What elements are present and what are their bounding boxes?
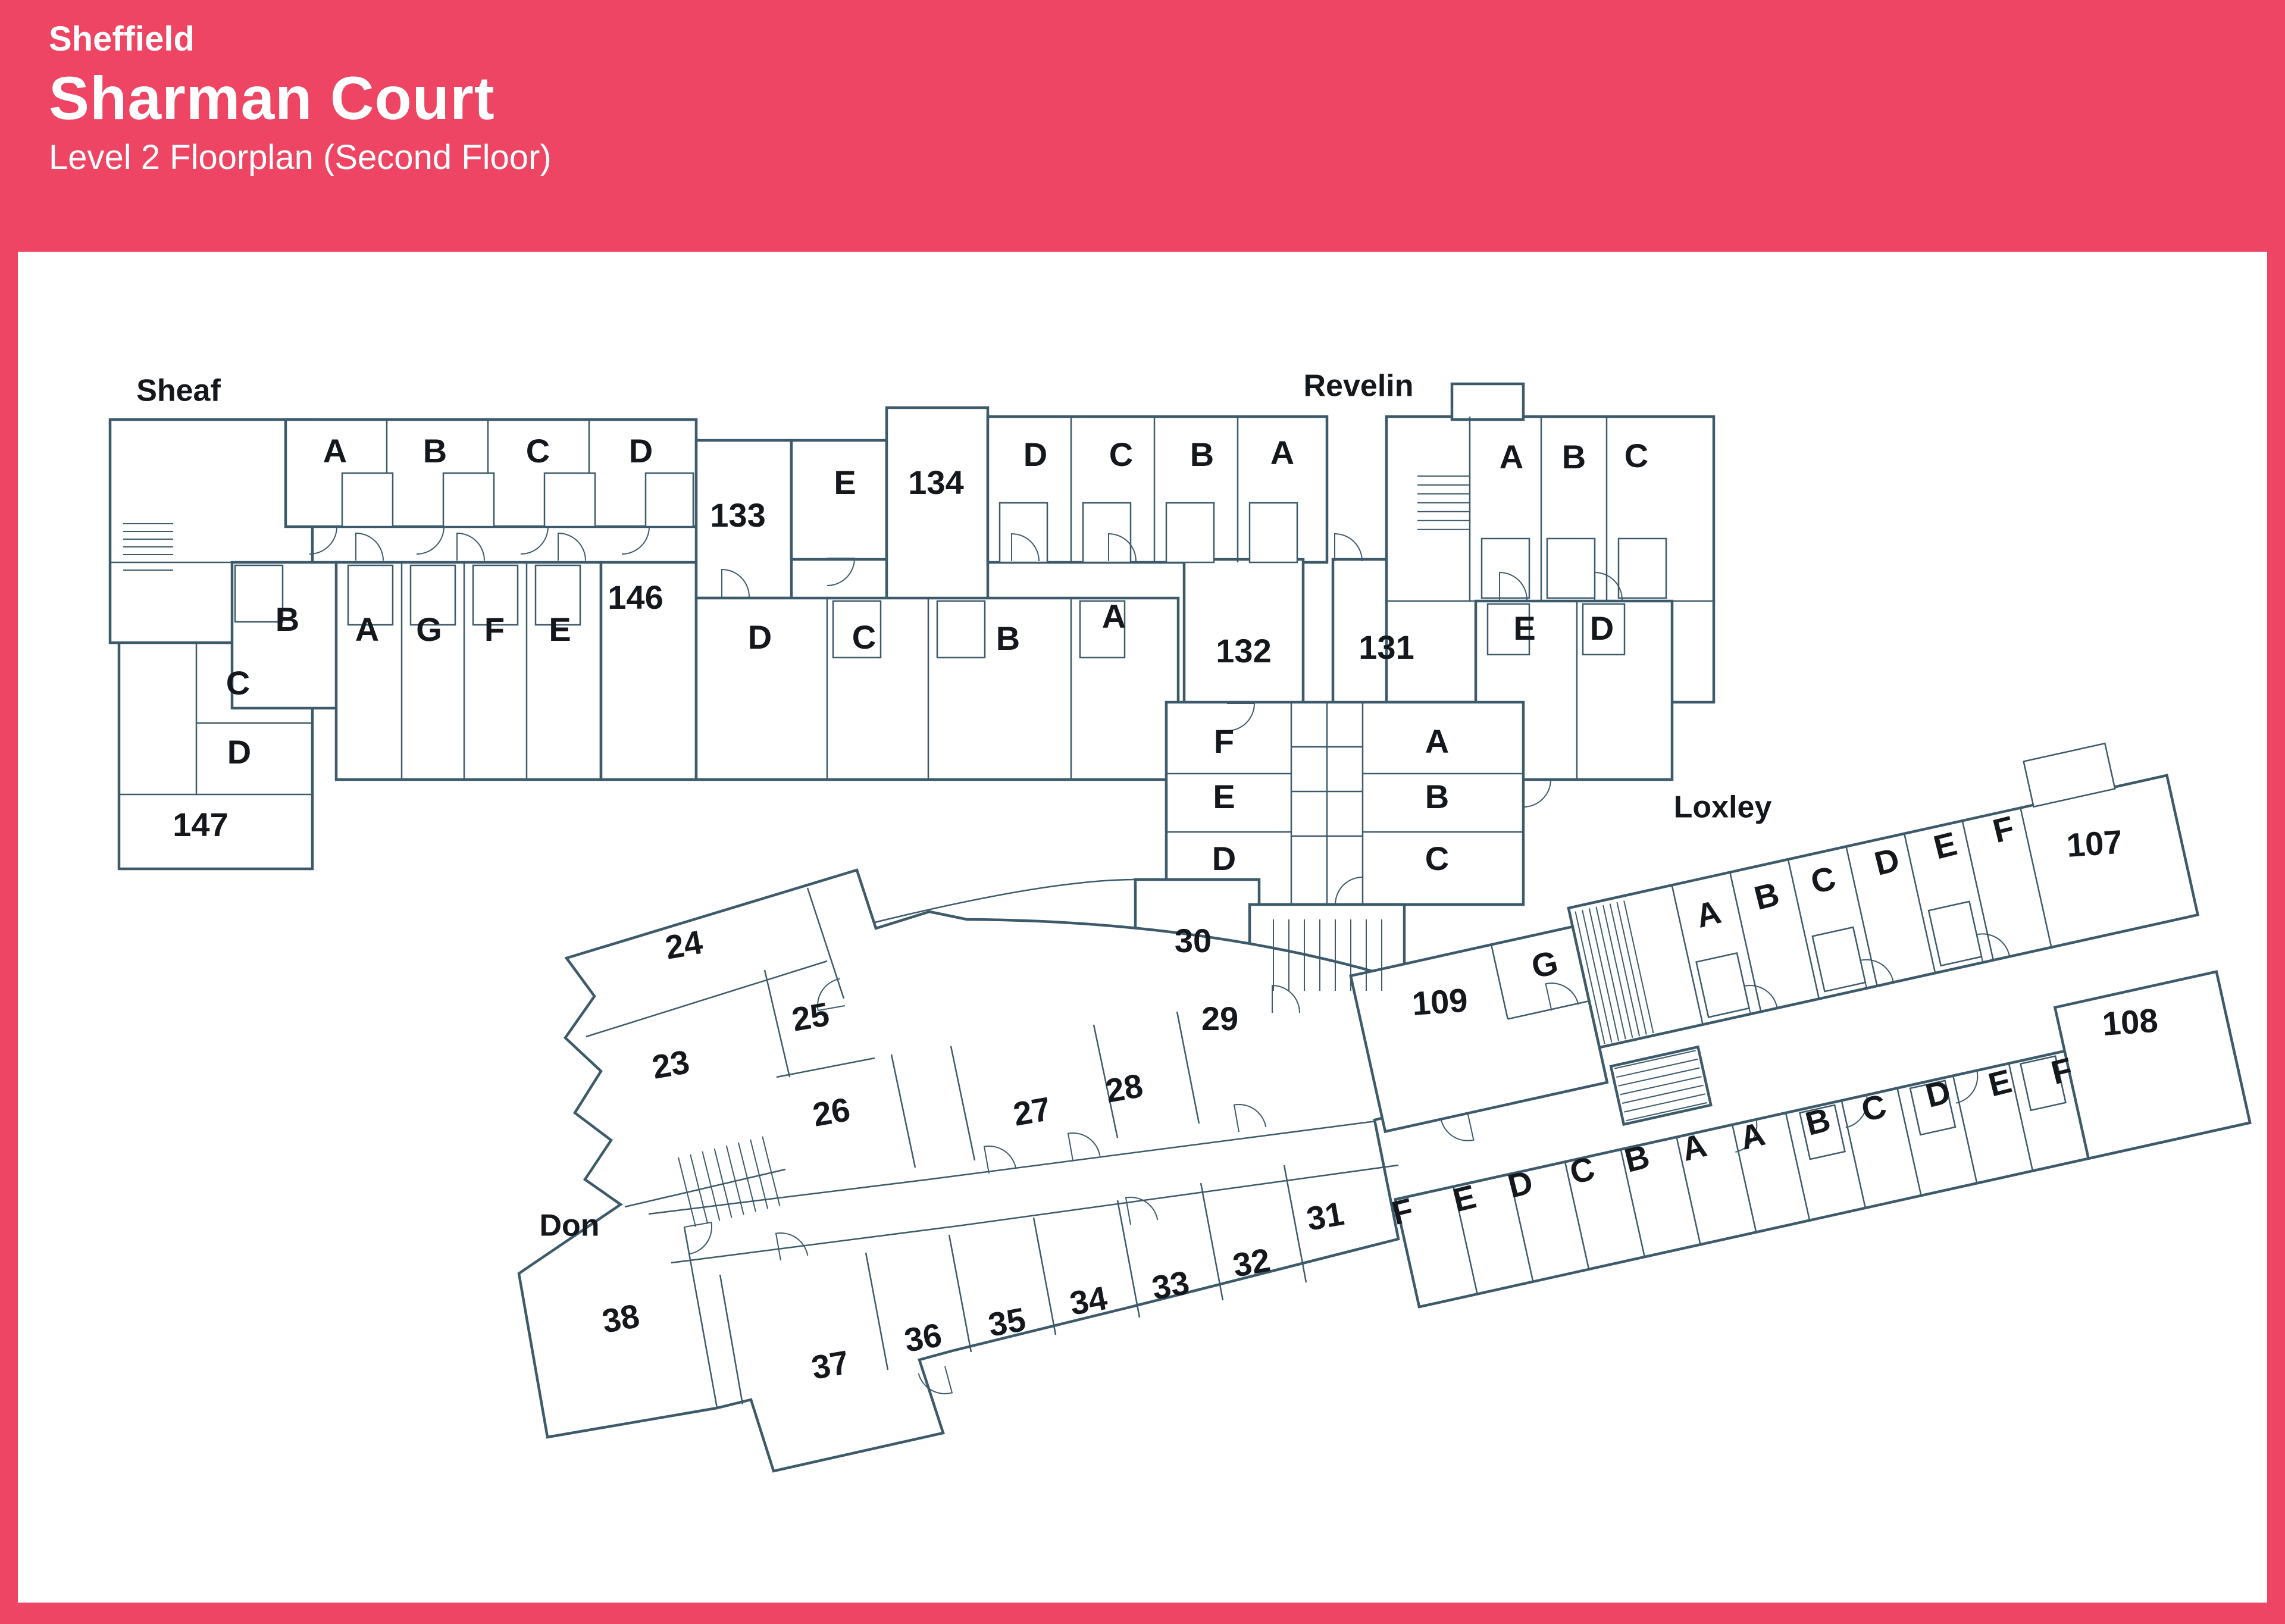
room-label-C: C	[1624, 437, 1648, 474]
room-label-D: D	[1212, 840, 1236, 877]
wing-label-revelin: Revelin	[1304, 369, 1414, 403]
wall-rect	[1166, 503, 1214, 562]
room-label-A: A	[355, 611, 379, 648]
room-label-B: B	[423, 432, 447, 470]
room-label-C: C	[852, 618, 876, 656]
room-label-133: 133	[710, 496, 765, 534]
city-label: Sheffield	[49, 18, 552, 61]
room-label-D: D	[227, 733, 251, 771]
room-label-147: 147	[173, 806, 228, 843]
room-label-B: B	[996, 619, 1020, 657]
room-label-34: 34	[1067, 1279, 1110, 1322]
floor-subtitle: Level 2 Floorplan (Second Floor)	[49, 135, 552, 180]
room-label-C: C	[1109, 436, 1133, 473]
room-label-B: B	[1562, 438, 1586, 475]
room-label-29: 29	[1201, 1000, 1238, 1037]
wall-rect	[443, 473, 494, 527]
room-label-G: G	[416, 611, 442, 648]
room-label-26: 26	[810, 1090, 853, 1134]
wing-label-don: Don	[539, 1209, 599, 1243]
room-label-132: 132	[1216, 632, 1271, 669]
room-label-23: 23	[649, 1043, 692, 1086]
room-label-D: D	[748, 618, 772, 656]
room-label-A: A	[323, 432, 347, 470]
room-label-B: B	[1425, 778, 1449, 815]
room-label-32: 32	[1230, 1241, 1273, 1284]
room-label-25: 25	[789, 995, 832, 1038]
room-label-134: 134	[908, 464, 963, 501]
wall-rect	[937, 601, 985, 658]
room-label-E: E	[1513, 609, 1535, 647]
wall-rect	[544, 473, 595, 527]
room-label-131: 131	[1359, 628, 1414, 666]
wall-rect	[1083, 503, 1131, 562]
room-label-27: 27	[1010, 1090, 1053, 1133]
room-label-108: 108	[2101, 1002, 2159, 1043]
room-label-B: B	[276, 600, 299, 638]
room-label-E: E	[549, 611, 571, 648]
room-label-37: 37	[809, 1343, 852, 1387]
wing-label-sheaf: Sheaf	[136, 374, 221, 408]
page-header: Sheffield Sharman Court Level 2 Floorpla…	[49, 18, 552, 180]
room-label-A: A	[1270, 434, 1294, 471]
wall-rect	[646, 473, 693, 527]
room-label-A: A	[1425, 722, 1449, 760]
room-label-C: C	[226, 664, 250, 702]
room-label-30: 30	[1175, 922, 1212, 959]
wall-rect	[1000, 503, 1047, 562]
room-label-E: E	[834, 464, 856, 501]
room-label-D: D	[1023, 436, 1047, 473]
room-label-38: 38	[599, 1297, 642, 1340]
room-label-F: F	[484, 611, 505, 648]
wing-label-loxley: Loxley	[1674, 790, 1772, 825]
room-label-A: A	[1102, 597, 1126, 635]
floorplan-canvas: SheafRevelinLoxleyDonABCD133E134DCBAABCB…	[0, 0, 2285, 1624]
wall-rect	[342, 473, 393, 527]
room-label-F: F	[1214, 722, 1234, 760]
room-label-24: 24	[662, 923, 705, 966]
wall-rect	[2055, 972, 2250, 1159]
wall-rect	[1547, 539, 1595, 598]
room-label-35: 35	[985, 1300, 1028, 1344]
room-label-B: B	[1190, 436, 1214, 473]
room-label-C: C	[1425, 840, 1449, 877]
room-label-C: C	[526, 432, 550, 470]
room-label-109: 109	[1411, 981, 1469, 1022]
wall-rect	[1452, 384, 1523, 420]
wall-rect	[1250, 503, 1297, 562]
room-label-36: 36	[902, 1316, 944, 1359]
room-label-31: 31	[1304, 1194, 1347, 1238]
room-label-D: D	[629, 432, 653, 470]
room-label-E: E	[1213, 778, 1235, 815]
room-label-A: A	[1500, 438, 1523, 475]
floorplan-page: Sheffield Sharman Court Level 2 Floorpla…	[0, 0, 2285, 1624]
room-label-28: 28	[1103, 1066, 1145, 1110]
room-label-146: 146	[608, 578, 663, 616]
room-label-107: 107	[2065, 823, 2124, 864]
wall-rect	[1619, 539, 1666, 598]
building-title: Sharman Court	[49, 61, 552, 135]
room-label-33: 33	[1149, 1263, 1192, 1307]
room-label-D: D	[1590, 609, 1614, 647]
wall-rect	[1482, 539, 1529, 598]
